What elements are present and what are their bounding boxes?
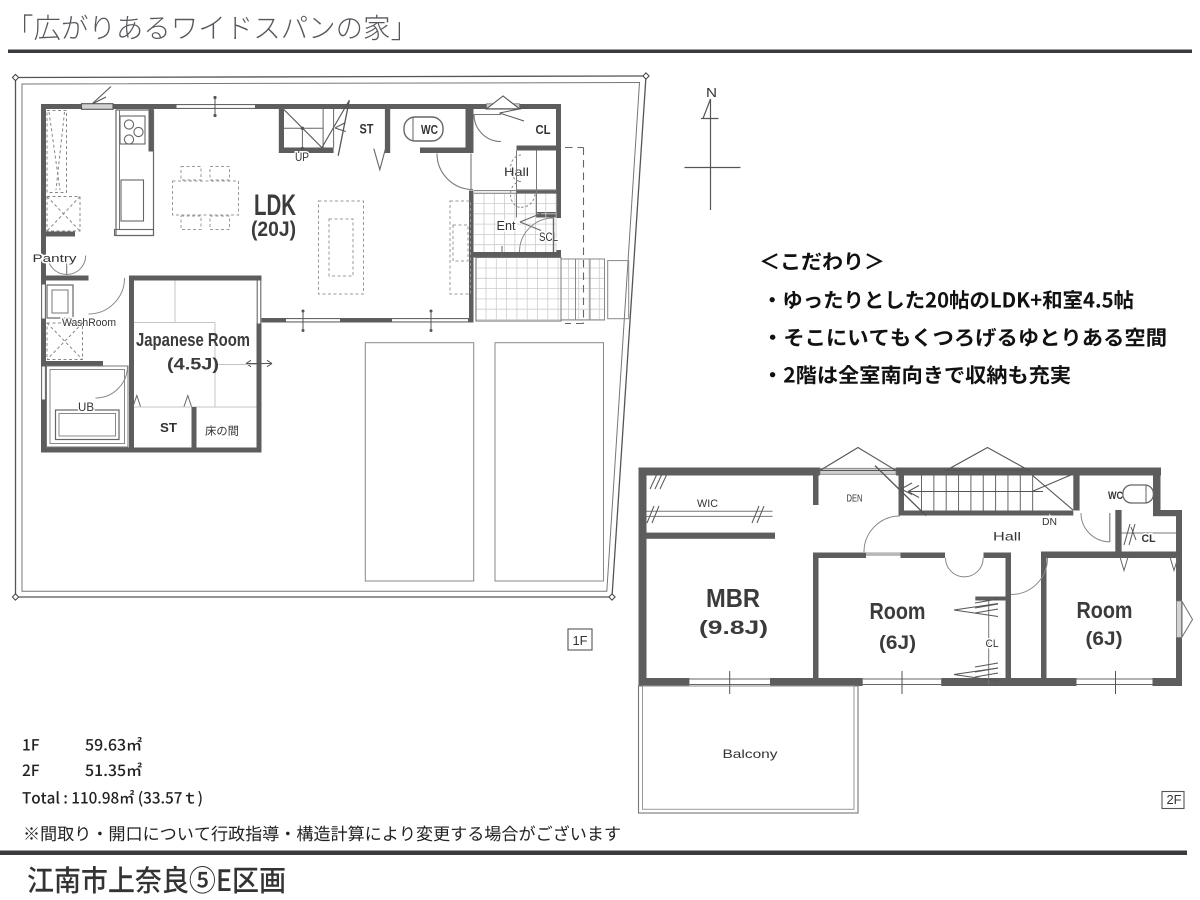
svg-text:Japanese Room: Japanese Room — [136, 330, 250, 350]
svg-text:(20J): (20J) — [251, 218, 296, 241]
svg-text:WIC: WIC — [697, 498, 718, 510]
svg-text:SCL: SCL — [539, 230, 558, 244]
svg-text:Pantry: Pantry — [33, 253, 78, 265]
svg-text:N: N — [706, 86, 717, 100]
svg-text:(6J): (6J) — [879, 633, 916, 654]
svg-text:DEN: DEN — [847, 494, 863, 505]
svg-text:DN: DN — [1042, 516, 1057, 528]
svg-text:1F: 1F — [573, 633, 588, 648]
svg-text:WC: WC — [421, 123, 438, 137]
svg-text:(9.8J): (9.8J) — [699, 618, 768, 639]
svg-text:Ent: Ent — [497, 218, 516, 233]
svg-text:Hall: Hall — [993, 530, 1021, 544]
svg-text:Balcony: Balcony — [723, 747, 778, 761]
svg-text:WC: WC — [1108, 490, 1123, 502]
svg-text:Room: Room — [870, 598, 926, 624]
svg-text:ST: ST — [360, 121, 374, 137]
svg-text:ST: ST — [160, 420, 177, 435]
svg-text:MBR: MBR — [706, 583, 760, 613]
svg-text:CL: CL — [1142, 533, 1156, 545]
svg-text:2F: 2F — [1167, 792, 1182, 807]
svg-text:Room: Room — [1077, 597, 1133, 623]
svg-text:(6J): (6J) — [1086, 629, 1123, 650]
svg-text:CL: CL — [536, 123, 551, 137]
svg-text:(4.5J): (4.5J) — [167, 355, 219, 374]
svg-text:CL: CL — [986, 638, 999, 650]
svg-text:UP: UP — [295, 150, 309, 164]
svg-text:UB: UB — [78, 400, 94, 414]
